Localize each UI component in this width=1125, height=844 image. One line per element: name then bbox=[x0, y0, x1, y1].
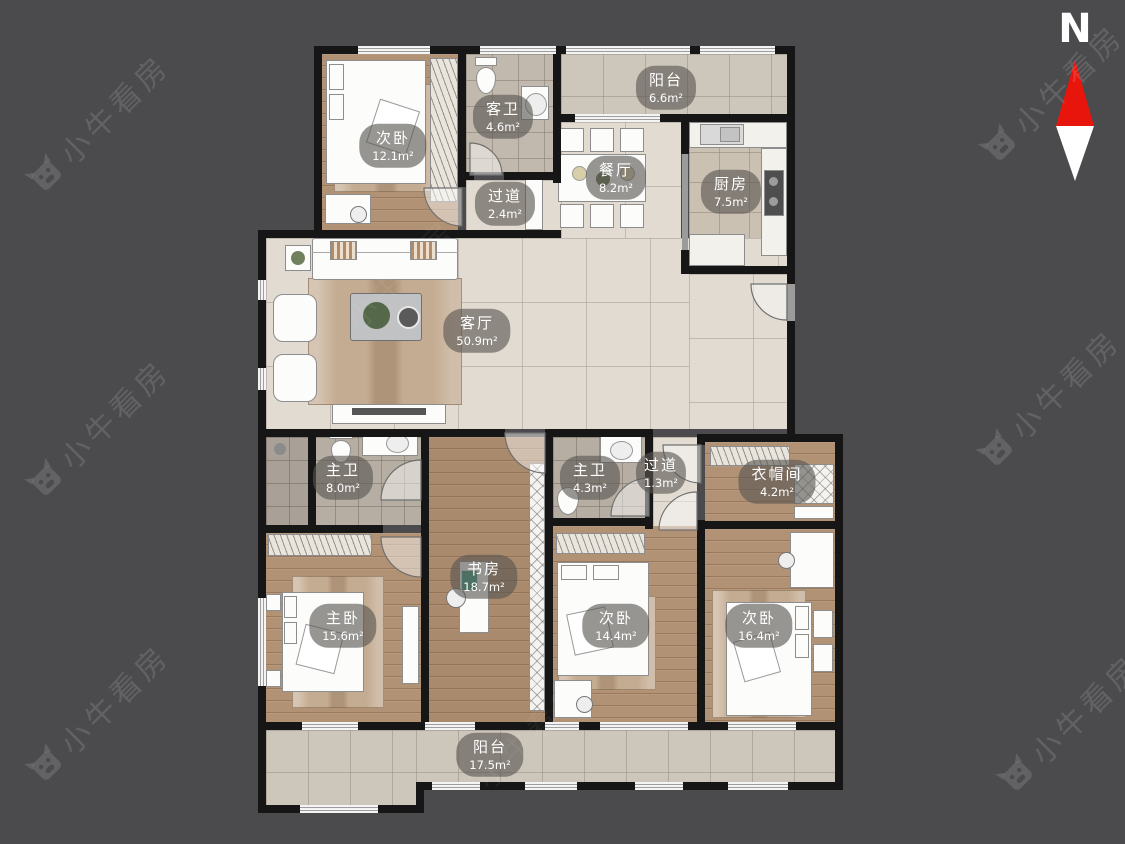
room-label-master-bedroom: 主卧15.6m² bbox=[309, 604, 376, 648]
compass-needle-icon bbox=[1040, 60, 1110, 182]
room-label-cloakroom: 衣帽间4.2m² bbox=[738, 460, 815, 504]
room-label-hallway-small: 过道1.3m² bbox=[636, 452, 686, 494]
room-label-master-bathroom: 主卫8.0m² bbox=[313, 456, 373, 500]
study-door-arc bbox=[505, 433, 545, 473]
compass-north-label: N bbox=[1040, 6, 1110, 52]
room-label-living: 客厅50.9m² bbox=[443, 309, 510, 353]
room-label-bedroom-3: 次卧16.4m² bbox=[725, 604, 792, 648]
room-label-guest-bathroom: 客卫4.6m² bbox=[473, 95, 533, 139]
room-label-study: 书房18.7m² bbox=[450, 555, 517, 599]
room-label-balcony-top: 阳台6.6m² bbox=[636, 66, 696, 110]
room-label-bedroom-top-left: 次卧12.1m² bbox=[359, 124, 426, 168]
master-bedroom-door-arc bbox=[381, 537, 421, 577]
entry-door-arc bbox=[751, 284, 787, 320]
room-label-bedroom-2: 次卧14.4m² bbox=[582, 604, 649, 648]
room-label-kitchen: 厨房7.5m² bbox=[701, 170, 761, 214]
master-bath-door-arc bbox=[381, 460, 421, 500]
bedroom2-door-arc bbox=[659, 492, 697, 530]
room-label-balcony-bottom: 阳台17.5m² bbox=[456, 733, 523, 777]
door-arcs bbox=[0, 0, 1125, 844]
room-label-hallway-top: 过道2.4m² bbox=[475, 182, 535, 226]
floorplan-canvas: 次卧12.1m² 客卫4.6m² 阳台6.6m² 餐厅8.2m² 厨房7.5m²… bbox=[0, 0, 1125, 844]
guest-bath-door-arc bbox=[470, 143, 502, 175]
room-label-dining: 餐厅8.2m² bbox=[586, 156, 646, 200]
bedroom-tl-door-arc bbox=[424, 188, 462, 226]
room-label-master-bathroom-2: 主卫4.3m² bbox=[560, 456, 620, 500]
